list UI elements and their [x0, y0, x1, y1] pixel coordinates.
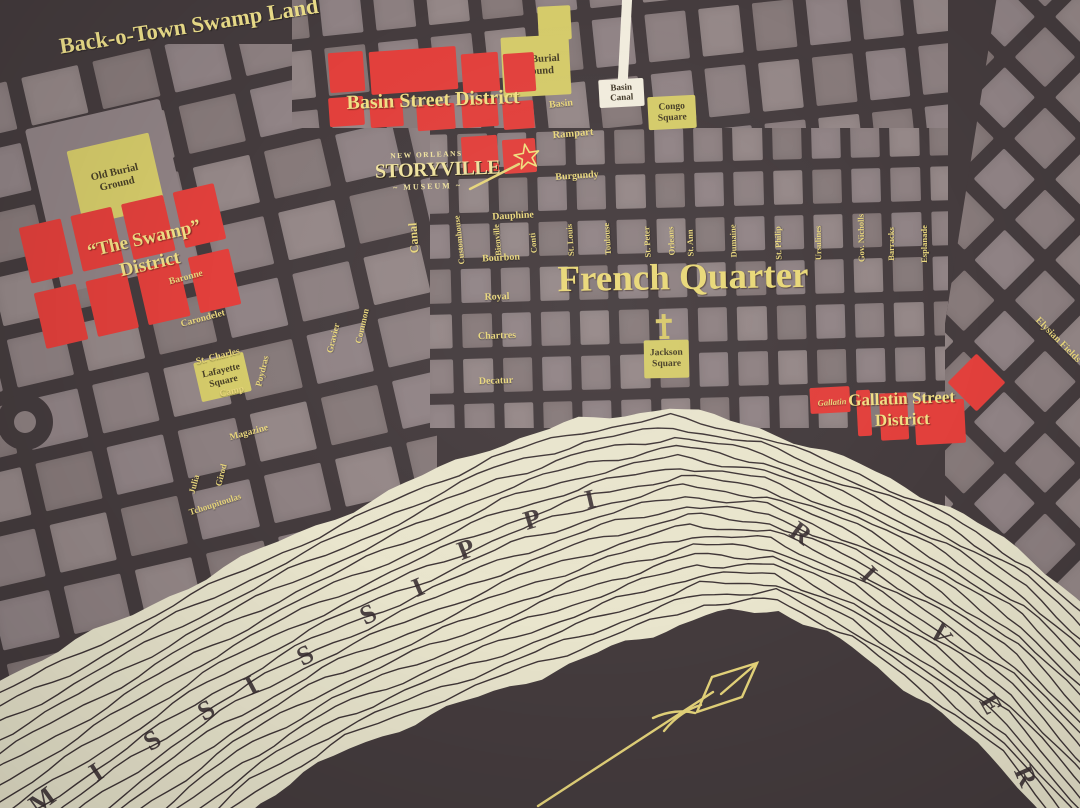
street-label-rampart: Rampart [552, 127, 594, 142]
street-label-poydras: Poydras [253, 355, 270, 388]
street-label-basin: Basin [549, 97, 574, 110]
french-quarter-title: French Quarter [513, 253, 854, 302]
street-label-conti: Conti [527, 232, 539, 253]
street-label-girod: Girod [213, 463, 229, 488]
street-label-esplanade: Esplanade [919, 225, 929, 263]
street-label-gallatin: Gallatin [817, 396, 846, 408]
street-label-canal: Canal [405, 222, 422, 254]
gallatin-district-label: Gallatin Street District [827, 385, 976, 433]
street-label-customhouse: Customhouse [451, 215, 466, 265]
map-title: Back-o-Town Swamp Land [58, 0, 311, 60]
street-label-st-charles: St. Charles [195, 347, 241, 368]
street-label-decatur: Decatur [479, 375, 514, 387]
storyville-map: Old Burial Ground Old Burial Ground Cong… [0, 0, 1080, 808]
street-label-gravier: Gravier [324, 322, 341, 354]
street-label-dauphine: Dauphine [492, 209, 534, 222]
street-label-magazine: Magazine [229, 423, 270, 443]
street-label-st-louis: St. Louis [564, 224, 576, 257]
street-label-st-philip: St. Philip [772, 226, 783, 260]
street-label-tchoupitoulas: Tchoupitoulas [188, 491, 243, 517]
storyville-museum-logo: NEW ORLEANS STORYVILLE MUSEUM [374, 148, 479, 193]
label-layer: Back-o-Town Swamp Land French Quarter Ba… [0, 0, 1080, 808]
street-label-elysian-fields: Elysian Fields [1033, 315, 1080, 365]
street-label-royal: Royal [484, 291, 509, 303]
street-label-bienville: Bienville [491, 224, 504, 256]
street-label-ursulines: Ursulines [813, 226, 824, 261]
street-label-gov-nicholls: Gov. Nicholls [856, 214, 867, 262]
street-label-julia: Julia [187, 474, 202, 495]
street-label-toulouse: Toulouse [601, 223, 613, 256]
street-label-common: Common [353, 308, 371, 345]
street-label-st-ann: St. Ann [685, 229, 696, 256]
street-label-burgundy: Burgundy [555, 169, 599, 183]
street-label-chartres: Chartres [478, 330, 517, 342]
swamp-district-label: “The Swamp” District [49, 205, 246, 298]
street-label-dumaine: Dumaine [727, 224, 738, 257]
basin-street-district-label: Basin Street District [333, 86, 534, 116]
logo-name: STORYVILLE [375, 157, 480, 184]
street-label-carondelet: Carondelet [180, 308, 226, 329]
street-label-barracks: Barracks [886, 227, 896, 261]
street-label-camp: Camp [219, 384, 245, 399]
street-label-st-peter: St. Peter [641, 226, 653, 258]
street-label-orleans: Orleans [665, 226, 676, 255]
